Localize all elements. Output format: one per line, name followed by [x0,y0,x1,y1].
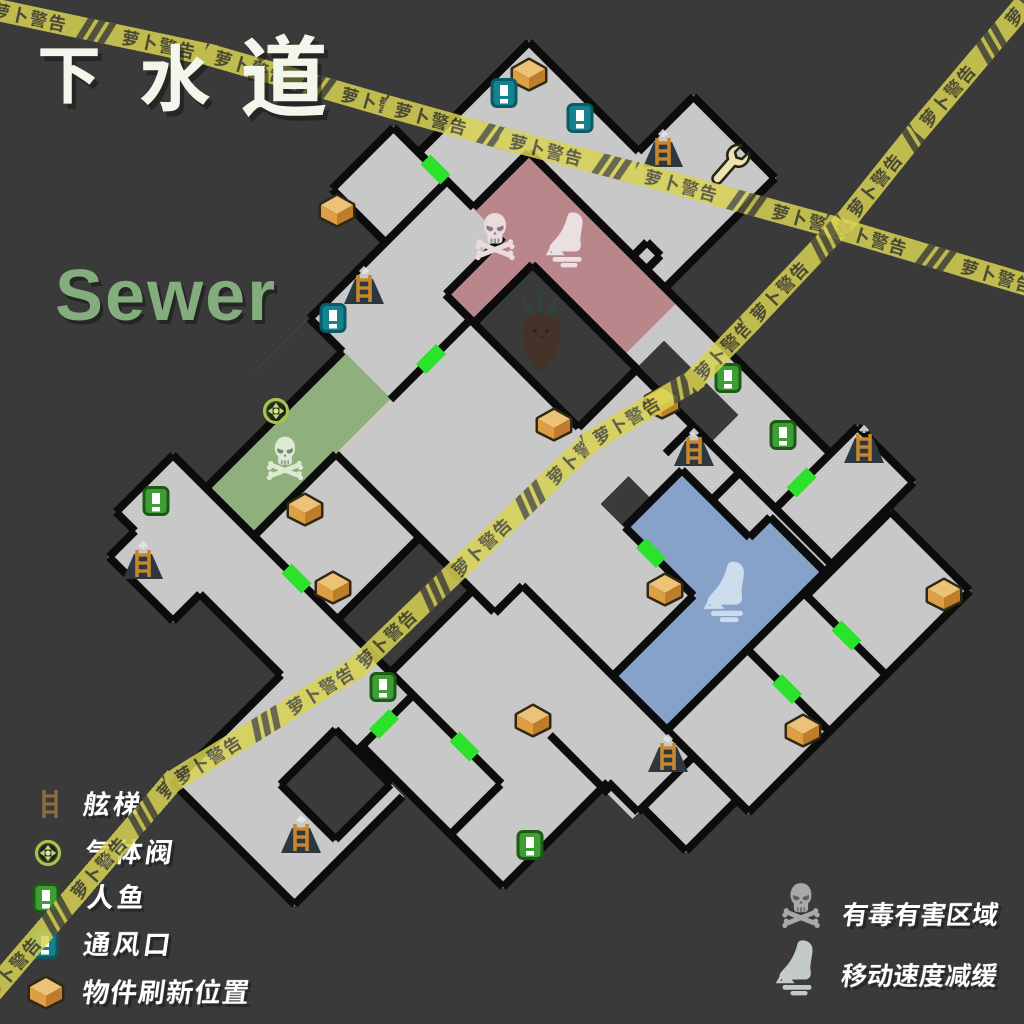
svg-text:Sewer: Sewer [55,256,277,336]
